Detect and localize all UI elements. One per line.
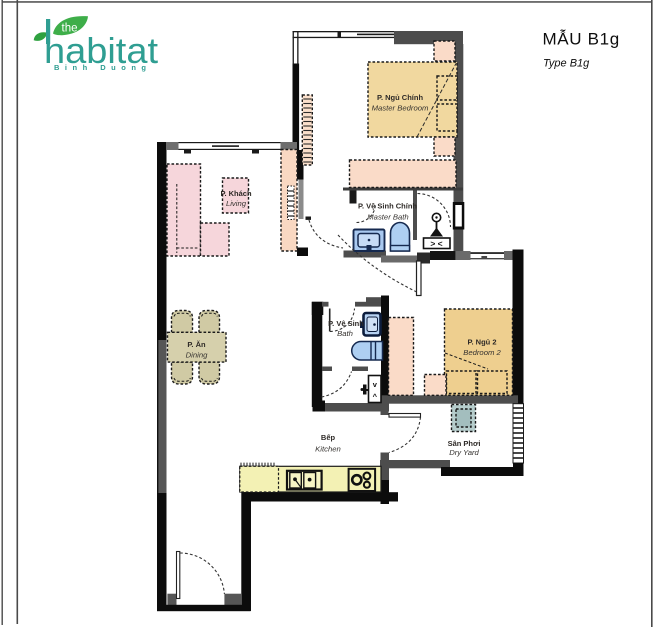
svg-text:Master Bath: Master Bath (367, 213, 408, 222)
svg-text:Master Bedroom: Master Bedroom (372, 104, 429, 113)
svg-text:P. Ngủ Chính: P. Ngủ Chính (377, 93, 424, 102)
svg-text:> <: > < (430, 239, 442, 249)
svg-text:Binh Duong: Binh Duong (54, 63, 151, 72)
svg-text:P. Khách: P. Khách (220, 189, 252, 198)
svg-text:Type B1g: Type B1g (543, 57, 590, 69)
svg-text:Sân Phơi: Sân Phơi (448, 439, 481, 448)
svg-text:P. Vệ Sinh: P. Vệ Sinh (328, 319, 364, 328)
svg-text:P. Ăn: P. Ăn (187, 340, 206, 349)
svg-text:Dry Yard: Dry Yard (449, 448, 479, 457)
svg-text:P. Vệ Sinh Chính: P. Vệ Sinh Chính (358, 202, 417, 211)
svg-text:Living: Living (226, 199, 247, 208)
svg-text:^: ^ (373, 392, 378, 401)
svg-text:Dining: Dining (186, 351, 209, 360)
svg-text:P. Ngủ 2: P. Ngủ 2 (467, 338, 496, 347)
svg-text:Bếp: Bếp (321, 433, 336, 442)
svg-text:Bath: Bath (337, 329, 353, 338)
svg-text:Bedroom 2: Bedroom 2 (463, 348, 501, 357)
svg-text:Kitchen: Kitchen (315, 445, 341, 454)
svg-text:MẪU B1g: MẪU B1g (543, 30, 620, 49)
